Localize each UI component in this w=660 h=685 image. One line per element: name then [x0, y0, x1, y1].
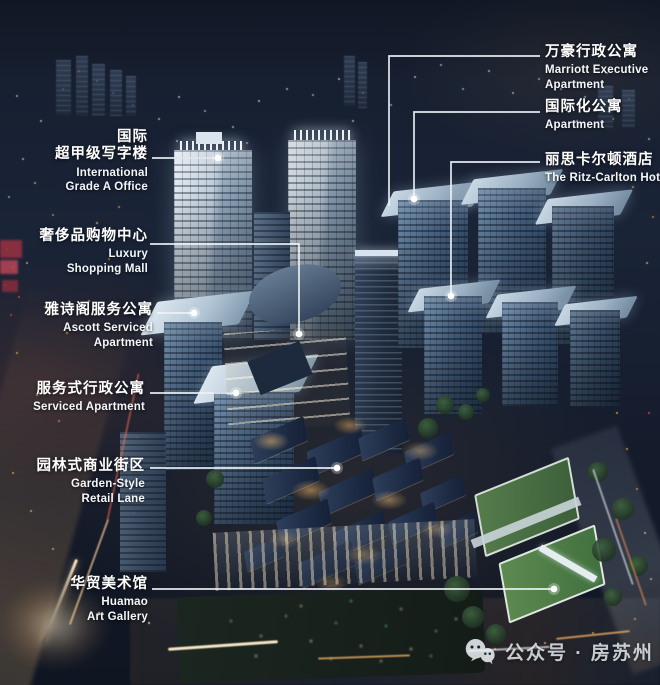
tree [612, 498, 634, 520]
tree [604, 588, 622, 606]
background-building [126, 76, 136, 116]
tree [476, 388, 490, 402]
background-building [358, 62, 367, 108]
callout-serviced-apartment: 服务式行政公寓 Serviced Apartment [0, 381, 145, 415]
callout-zh: 国际化公寓 [545, 99, 660, 116]
background-building [76, 56, 88, 116]
callout-en: Serviced Apartment [0, 400, 145, 414]
callout-zh: 园林式商业街区 [0, 458, 145, 475]
callout-garden-retail: 园林式商业街区 Garden-Style Retail Lane [0, 458, 145, 506]
callout-en: Ascott Serviced Apartment [3, 321, 153, 350]
aerial-night-render: 国际 超甲级写字楼 International Grade A Office 奢… [0, 0, 660, 685]
callout-luxury-mall: 奢侈品购物中心 Luxury Shopping Mall [0, 228, 148, 276]
neon-sign [2, 280, 18, 292]
background-building [344, 56, 355, 106]
callout-zh: 华贸美术馆 [0, 576, 148, 593]
tree [458, 404, 474, 420]
callout-art-gallery: 华贸美术馆 Huamao Art Gallery [0, 576, 148, 624]
callout-intl-office: 国际 超甲级写字楼 International Grade A Office [0, 129, 148, 195]
background-building [110, 70, 122, 116]
tree [462, 606, 484, 628]
callout-en: Marriott Executive Apartment [545, 63, 660, 92]
callout-marriott: 万豪行政公寓 Marriott Executive Apartment [545, 44, 660, 92]
callout-ritz-carlton: 丽思卡尔顿酒店 The Ritz-Carlton Hotel [545, 152, 660, 186]
apartment-tower [570, 310, 620, 406]
callout-zh: 奢侈品购物中心 [0, 228, 148, 245]
tree [444, 576, 470, 602]
callout-en: Garden-Style Retail Lane [0, 477, 145, 506]
callout-en: Huamao Art Gallery [0, 595, 148, 624]
watermark: 公众号 · 房苏州 [464, 638, 654, 665]
tree [592, 538, 616, 562]
tree [206, 470, 224, 488]
callout-en: Apartment [545, 118, 660, 132]
tree [436, 396, 454, 414]
background-building [56, 60, 71, 115]
park-lights [0, 0, 2, 2]
office-tower-penthouse [196, 132, 222, 144]
watermark-text: 公众号 · 房苏州 [505, 638, 654, 665]
callout-zh: 万豪行政公寓 [545, 44, 660, 61]
callout-en: Luxury Shopping Mall [0, 247, 148, 276]
tree [418, 418, 438, 438]
callout-en: The Ritz-Carlton Hotel [545, 171, 660, 185]
tree [588, 462, 608, 482]
central-park [177, 587, 486, 684]
background-building [92, 64, 105, 116]
callout-en: International Grade A Office [0, 166, 148, 195]
callout-intl-apartment: 国际化公寓 Apartment [545, 99, 660, 133]
wechat-icon [464, 638, 496, 665]
tree [196, 510, 212, 526]
callout-zh: 丽思卡尔顿酒店 [545, 152, 660, 169]
hotel-tower [424, 296, 482, 414]
callout-zh: 服务式行政公寓 [0, 381, 145, 398]
apartment-tower [502, 302, 558, 406]
callout-ascott: 雅诗阁服务公寓 Ascott Serviced Apartment [3, 302, 153, 350]
callout-zh: 雅诗阁服务公寓 [3, 302, 153, 319]
callout-zh: 国际 超甲级写字楼 [0, 129, 148, 164]
